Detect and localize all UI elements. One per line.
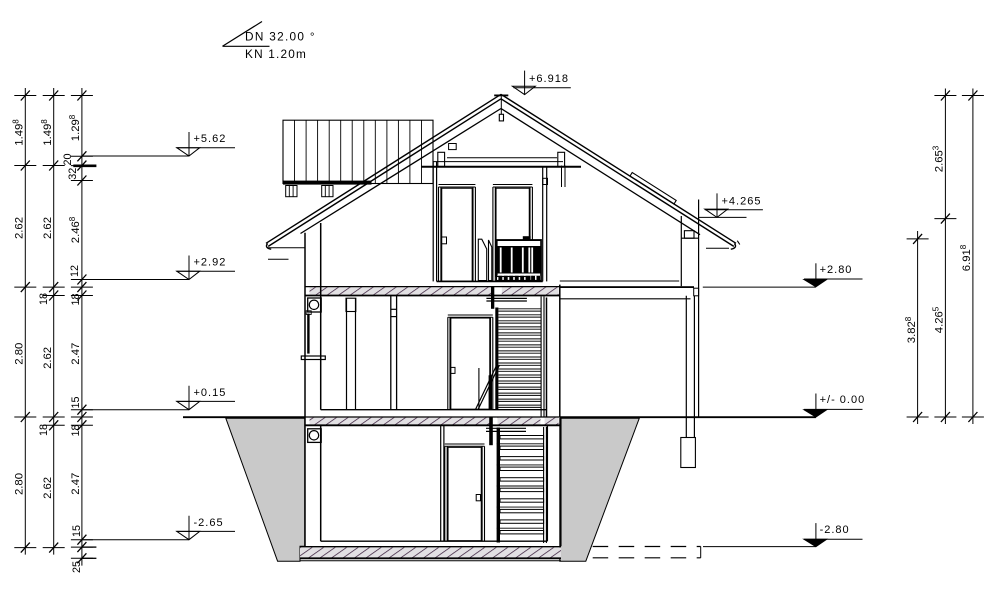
svg-text:18: 18 bbox=[70, 293, 82, 305]
svg-text:2.62: 2.62 bbox=[14, 217, 26, 239]
svg-text:+6.918: +6.918 bbox=[529, 73, 569, 85]
svg-text:+0.15: +0.15 bbox=[194, 387, 227, 399]
svg-text:15: 15 bbox=[70, 396, 82, 408]
svg-text:15: 15 bbox=[71, 525, 83, 537]
svg-text:-2.80: -2.80 bbox=[820, 524, 850, 536]
svg-text:2.47: 2.47 bbox=[70, 473, 82, 495]
svg-text:2.80: 2.80 bbox=[14, 473, 26, 495]
svg-text:2.62: 2.62 bbox=[42, 347, 54, 369]
svg-text:18: 18 bbox=[38, 424, 50, 436]
svg-text:25: 25 bbox=[71, 561, 83, 573]
svg-text:2.80: 2.80 bbox=[14, 343, 26, 365]
svg-text:12: 12 bbox=[69, 265, 81, 277]
svg-text:18: 18 bbox=[38, 293, 50, 305]
svg-text:DN 32.00 °: DN 32.00 ° bbox=[245, 30, 316, 44]
svg-text:2.62: 2.62 bbox=[42, 217, 54, 239]
svg-text:18: 18 bbox=[70, 424, 82, 436]
svg-text:+2.92: +2.92 bbox=[194, 257, 227, 269]
svg-text:+/- 0.00: +/- 0.00 bbox=[820, 394, 866, 406]
svg-text:20: 20 bbox=[62, 153, 74, 165]
svg-text:2.47: 2.47 bbox=[70, 343, 82, 365]
svg-text:+4.265: +4.265 bbox=[722, 196, 762, 208]
svg-text:KN 1.20m: KN 1.20m bbox=[245, 47, 307, 61]
svg-text:+2.80: +2.80 bbox=[820, 264, 853, 276]
svg-text:32: 32 bbox=[67, 168, 79, 180]
svg-text:2.62: 2.62 bbox=[42, 477, 54, 499]
svg-text:+5.62: +5.62 bbox=[194, 133, 227, 145]
svg-text:-2.65: -2.65 bbox=[194, 517, 224, 529]
